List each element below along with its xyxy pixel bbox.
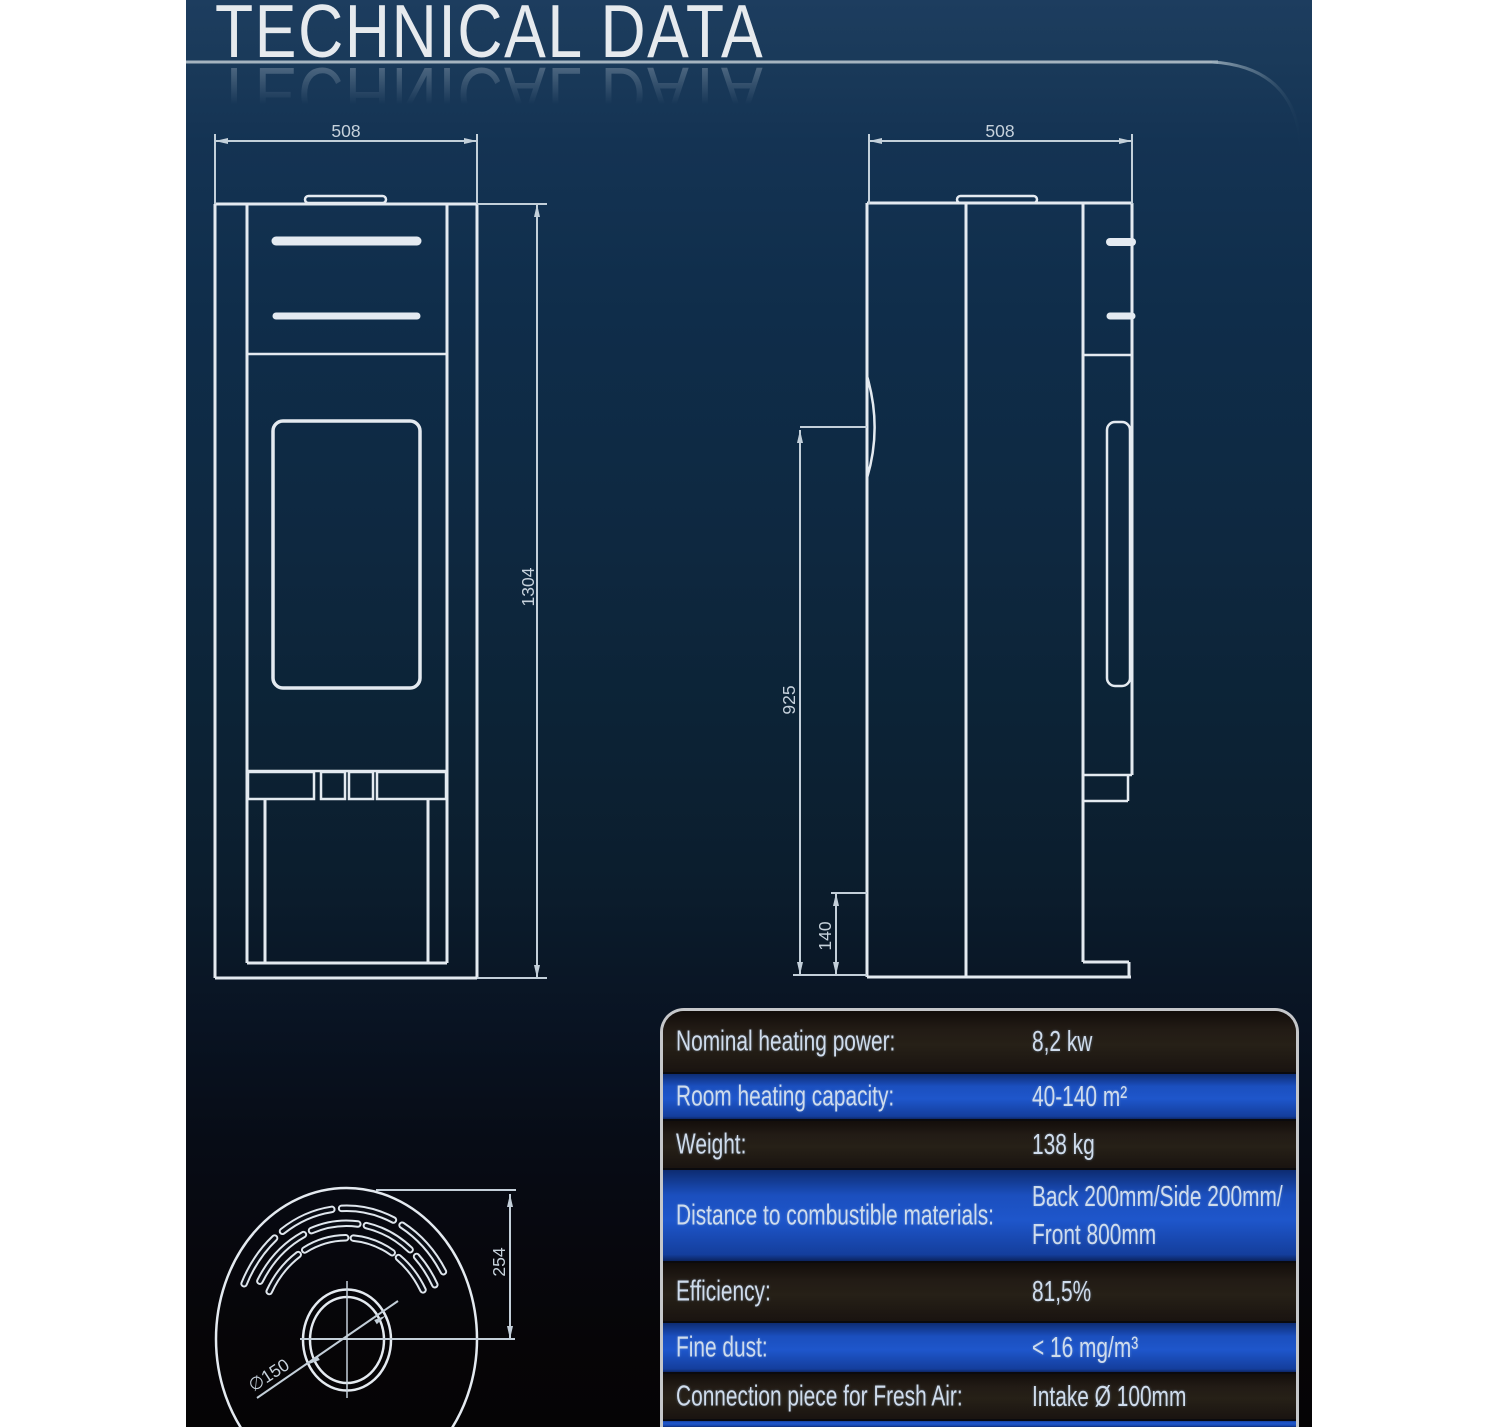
svg-text:140: 140: [815, 921, 835, 950]
svg-text:925: 925: [779, 685, 799, 714]
svg-text:508: 508: [985, 121, 1014, 141]
svg-text:508: 508: [331, 121, 360, 141]
svg-text:1304: 1304: [518, 567, 538, 606]
svg-text:254: 254: [489, 1247, 509, 1276]
